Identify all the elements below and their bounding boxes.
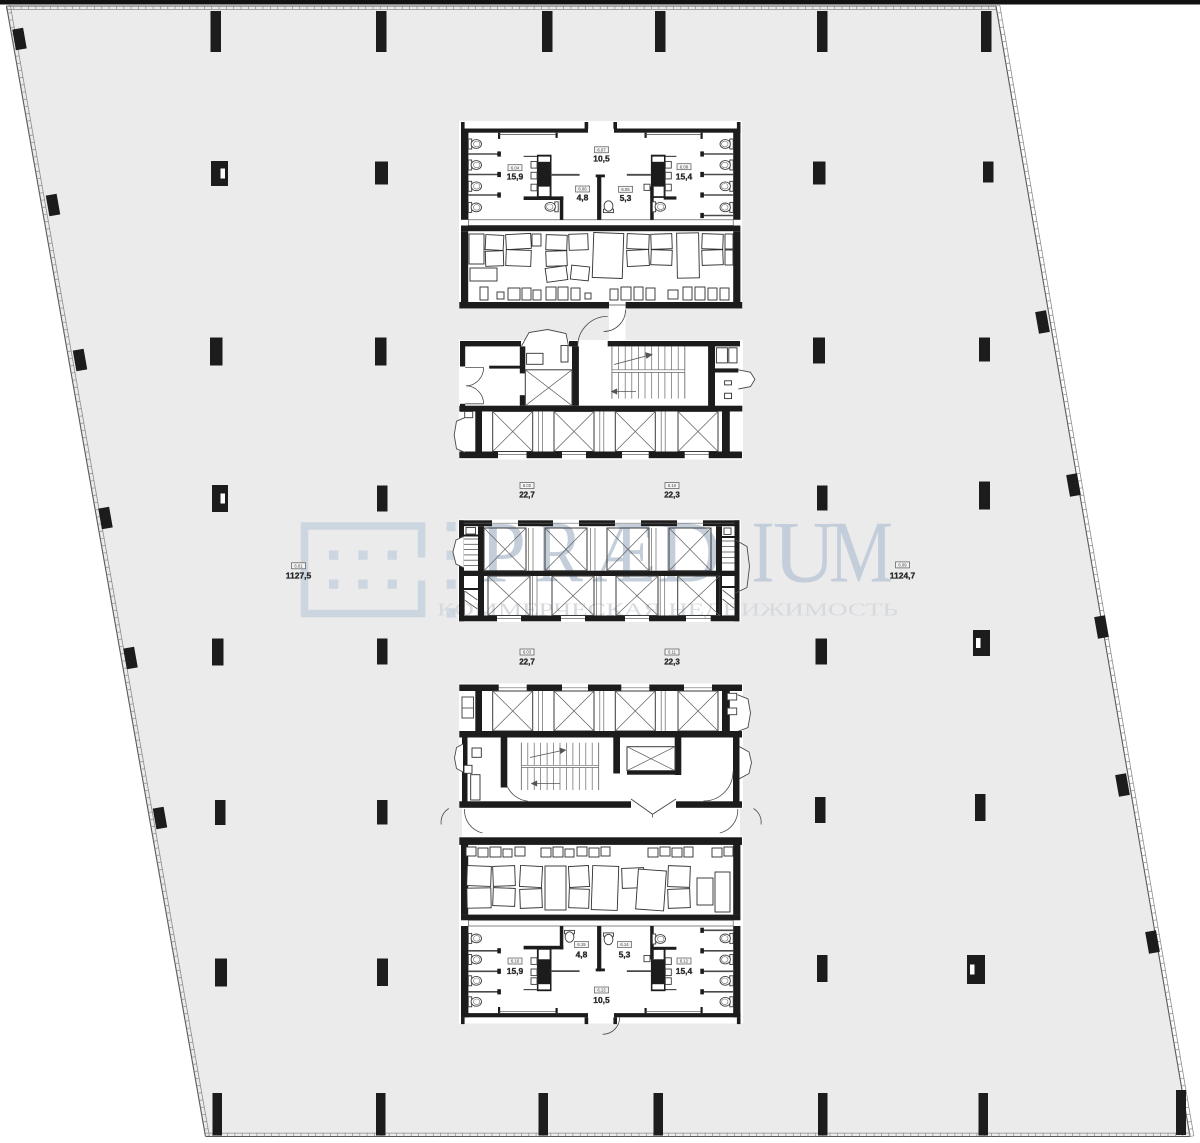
svg-text:6.16: 6.16 xyxy=(511,959,520,964)
svg-text:U: U xyxy=(773,505,836,602)
svg-text:22,3: 22,3 xyxy=(664,491,680,500)
svg-text:6.05: 6.05 xyxy=(621,187,630,192)
svg-text:6.12: 6.12 xyxy=(680,959,689,964)
svg-text:10,5: 10,5 xyxy=(593,154,610,164)
svg-text:6.02: 6.02 xyxy=(523,483,532,488)
svg-text:22,3: 22,3 xyxy=(664,658,680,667)
svg-text:6.11: 6.11 xyxy=(668,650,677,655)
svg-text:6.14: 6.14 xyxy=(620,942,629,947)
svg-text:4,8: 4,8 xyxy=(577,193,589,203)
svg-text:1127,5: 1127,5 xyxy=(286,571,312,581)
svg-text:4,8: 4,8 xyxy=(576,950,588,960)
svg-text:6.15: 6.15 xyxy=(577,942,586,947)
svg-text:15,9: 15,9 xyxy=(507,966,524,976)
svg-text:15,4: 15,4 xyxy=(676,966,693,976)
svg-text:15,4: 15,4 xyxy=(676,172,693,182)
svg-text:P: P xyxy=(480,505,527,602)
svg-text:6.04: 6.04 xyxy=(511,165,520,170)
svg-text:6.08: 6.08 xyxy=(680,164,689,169)
svg-text:6.07: 6.07 xyxy=(597,147,606,152)
svg-text:5,3: 5,3 xyxy=(620,193,632,203)
svg-text:6.06: 6.06 xyxy=(578,187,587,192)
svg-text:1124,7: 1124,7 xyxy=(890,571,916,581)
svg-text:6.09: 6.09 xyxy=(898,563,907,568)
svg-text:6.01: 6.01 xyxy=(294,563,303,568)
svg-text:10,5: 10,5 xyxy=(593,995,610,1005)
svg-text:R: R xyxy=(535,505,583,602)
svg-text:15,9: 15,9 xyxy=(507,172,524,182)
svg-text:5,3: 5,3 xyxy=(619,950,631,960)
svg-text:6.13: 6.13 xyxy=(597,988,606,993)
svg-text:6.03: 6.03 xyxy=(523,650,532,655)
svg-text:22,7: 22,7 xyxy=(519,658,535,667)
svg-text:M: M xyxy=(829,505,893,602)
svg-text:22,7: 22,7 xyxy=(519,491,535,500)
svg-text:6.10: 6.10 xyxy=(668,483,677,488)
svg-text:I: I xyxy=(752,505,775,602)
